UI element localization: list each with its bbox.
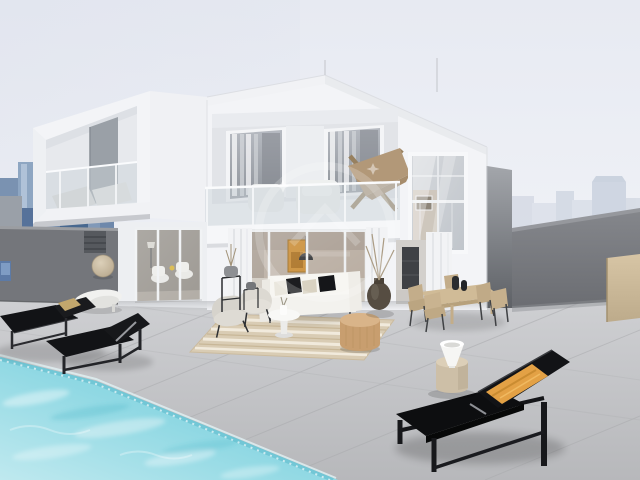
table-vase — [452, 276, 459, 290]
round-wall-decor — [92, 255, 114, 277]
tan-panel — [607, 254, 640, 322]
architectural-render — [0, 0, 640, 480]
table-vase — [461, 280, 467, 291]
sofa-pillow-black — [318, 275, 336, 292]
gray-slab — [487, 166, 512, 308]
left-sliding-doors — [118, 222, 207, 308]
rattan-pouf — [340, 313, 380, 353]
small-vase — [280, 305, 287, 315]
